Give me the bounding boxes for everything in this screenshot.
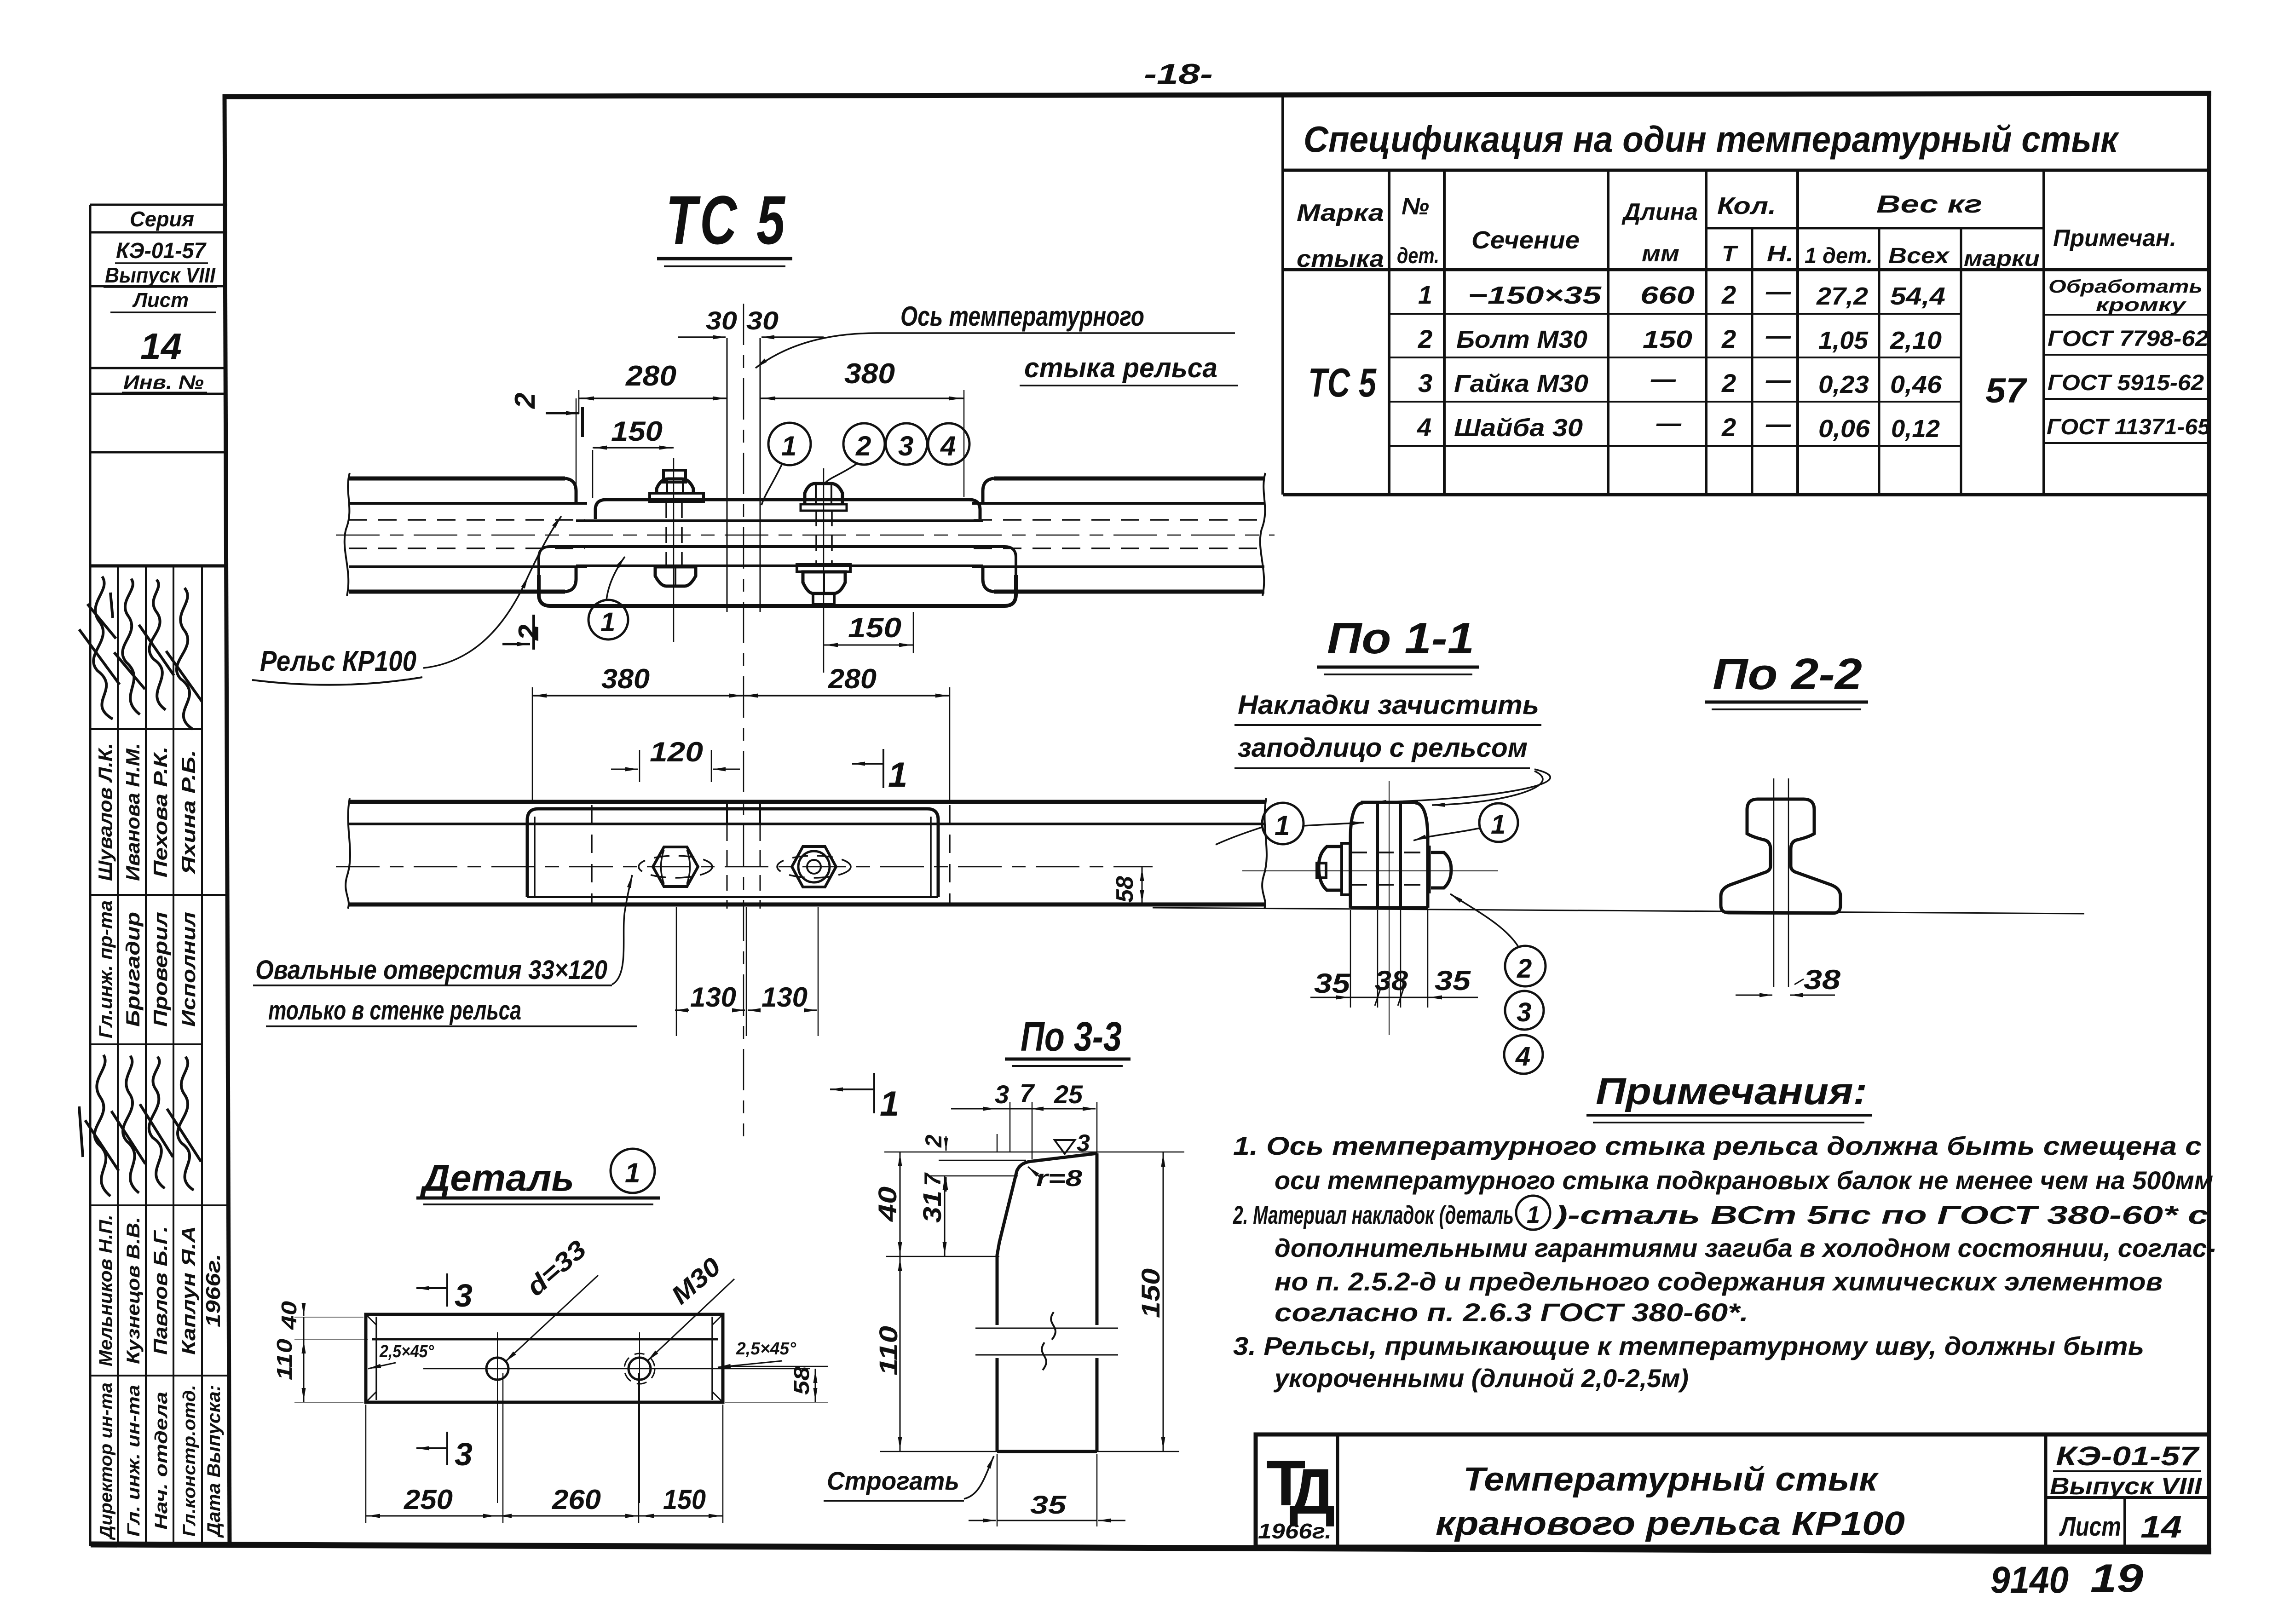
svg-text:1: 1: [1275, 810, 1290, 841]
svg-text:1: 1: [625, 1158, 640, 1188]
svg-text:260: 260: [552, 1484, 601, 1515]
svg-text:2,5×45°: 2,5×45°: [736, 1339, 796, 1359]
svg-text:Накладки зачистить: Накладки зачистить: [1238, 690, 1539, 720]
svg-text:2: 2: [509, 393, 541, 409]
svg-text:150: 150: [1643, 326, 1692, 353]
svg-text:только в стенке рельса: только в стенке рельса: [268, 996, 521, 1025]
svg-text:1: 1: [781, 431, 796, 461]
svg-text:Дата Выпуска:: Дата Выпуска:: [204, 1385, 224, 1538]
svg-text:35: 35: [1314, 968, 1351, 999]
svg-text:14: 14: [140, 326, 182, 367]
svg-text:280: 280: [625, 360, 676, 392]
svg-text:Строгать: Строгать: [827, 1466, 959, 1495]
svg-text:—: —: [1765, 322, 1791, 350]
svg-text:110: 110: [874, 1326, 903, 1376]
svg-text:—: —: [1650, 365, 1676, 393]
svg-text:0,06: 0,06: [1818, 415, 1870, 443]
svg-text:280: 280: [828, 663, 877, 694]
svg-text:120: 120: [650, 737, 703, 767]
svg-text:Марка: Марка: [1297, 200, 1384, 226]
svg-text:1: 1: [880, 1084, 899, 1123]
svg-text:укороченными (длиной 2,0-2,5: укороченными (длиной 2,0-2,5м): [1273, 1364, 1689, 1393]
svg-text:Иванова Н.М.: Иванова Н.М.: [122, 743, 144, 881]
svg-text:Рельс КР100: Рельс КР100: [260, 645, 416, 677]
svg-text:Гл.констр.отд.: Гл.констр.отд.: [180, 1385, 199, 1537]
svg-text:—: —: [1765, 278, 1791, 305]
svg-text:Павлов Б.Г.: Павлов Б.Г.: [150, 1226, 171, 1355]
svg-text:110: 110: [272, 1338, 296, 1380]
svg-text:ТС 5: ТС 5: [666, 181, 788, 259]
svg-text:3: 3: [898, 431, 913, 461]
svg-text:№: №: [1402, 193, 1429, 220]
svg-text:3. Рельсы, примыкающие к те: 3. Рельсы, примыкающие к температурному …: [1233, 1331, 2144, 1360]
svg-text:ГОСТ 5915-62: ГОСТ 5915-62: [2048, 371, 2204, 395]
svg-text:1: 1: [600, 607, 615, 637]
svg-text:30: 30: [746, 306, 779, 335]
svg-text:57: 57: [1985, 371, 2028, 410]
svg-text:2: 2: [1721, 369, 1736, 397]
svg-text:-18-: -18-: [1144, 58, 1213, 90]
svg-text:Инв. №: Инв. №: [123, 371, 204, 393]
svg-text:58: 58: [790, 1366, 813, 1395]
svg-text:Исполнил: Исполнил: [178, 912, 199, 1027]
svg-text:38: 38: [1375, 965, 1408, 996]
svg-text:2,10: 2,10: [1890, 327, 1942, 354]
svg-text:2: 2: [855, 431, 871, 461]
svg-text:35: 35: [1030, 1490, 1067, 1519]
svg-text:ТС 5: ТС 5: [1308, 360, 1377, 405]
svg-text:согласно п. 2.6.3 ГОСТ: согласно п. 2.6.3 ГОСТ 380-60*.: [1275, 1298, 1748, 1327]
svg-text:380: 380: [844, 358, 895, 390]
svg-text:Гл. инж. ин-та: Гл. инж. ин-та: [124, 1385, 144, 1537]
svg-text:14: 14: [2140, 1509, 2182, 1544]
svg-text:Гл.инж. пр-та: Гл.инж. пр-та: [96, 900, 116, 1038]
svg-text:Вес кг: Вес кг: [1876, 190, 1982, 218]
svg-text:Температурный стык: Температурный стык: [1463, 1461, 1879, 1498]
svg-text:9140: 9140: [1990, 1559, 2069, 1601]
svg-text:—: —: [1656, 409, 1682, 437]
svg-text:2: 2: [1721, 280, 1736, 309]
svg-text:Выпуск VIII: Выпуск VIII: [105, 263, 216, 287]
svg-text:но п. 2.5.2-д и предельного: но п. 2.5.2-д и предельного содержания х…: [1275, 1267, 2163, 1296]
svg-text:Болт М30: Болт М30: [1456, 326, 1587, 353]
svg-text:Серия: Серия: [130, 207, 194, 231]
svg-text:ГОСТ 7798-62: ГОСТ 7798-62: [2048, 327, 2209, 351]
svg-text:4: 4: [940, 431, 956, 461]
svg-text:Шайба 30: Шайба 30: [1454, 414, 1583, 442]
svg-text:31: 31: [917, 1191, 946, 1223]
svg-text:марки: марки: [1964, 247, 2040, 271]
svg-text:дет.: дет.: [1397, 244, 1439, 268]
svg-text:По 3-3: По 3-3: [1021, 1014, 1122, 1060]
svg-text:130: 130: [761, 982, 808, 1013]
svg-text:27,2: 27,2: [1816, 282, 1868, 310]
svg-text:250: 250: [404, 1484, 453, 1515]
svg-text:Шувалов Л.К.: Шувалов Л.К.: [94, 743, 116, 881]
svg-text:стыка: стыка: [1297, 246, 1384, 272]
svg-text:150: 150: [848, 612, 901, 643]
svg-text:130: 130: [690, 982, 736, 1013]
svg-text:1: 1: [888, 755, 907, 795]
svg-text:Бригадир: Бригадир: [122, 912, 144, 1027]
svg-text:мм: мм: [1642, 241, 1679, 266]
svg-text:19: 19: [2090, 1556, 2143, 1601]
svg-text:3: 3: [455, 1436, 473, 1472]
svg-text:3: 3: [1517, 997, 1531, 1027]
svg-text:3: 3: [995, 1080, 1009, 1109]
svg-text:0,12: 0,12: [1891, 415, 1940, 443]
svg-text:Лист: Лист: [132, 289, 189, 311]
svg-text:кранового рельса КР100: кранового рельса КР100: [1436, 1505, 1905, 1542]
svg-text:7: 7: [920, 1172, 946, 1186]
svg-text:Кол.: Кол.: [1717, 193, 1776, 219]
svg-text:Деталь: Деталь: [420, 1157, 574, 1199]
svg-text:заподлицо с рельсом: заподлицо с рельсом: [1238, 733, 1528, 763]
svg-text:4: 4: [1515, 1042, 1530, 1071]
svg-text:КЭ-01-57: КЭ-01-57: [116, 239, 207, 263]
svg-text:Т: Т: [1722, 242, 1738, 266]
svg-text:r=8: r=8: [1036, 1165, 1082, 1191]
svg-text:380: 380: [601, 663, 650, 694]
svg-text:40: 40: [277, 1301, 301, 1330]
svg-text:стыка рельса: стыка рельса: [1024, 352, 1217, 383]
svg-text:Мельников Н.П.: Мельников Н.П.: [96, 1215, 116, 1366]
svg-text:)-сталь ВСт 5пс по ГОСТ 380-60: )-сталь ВСт 5пс по ГОСТ 380-60* с: [1552, 1200, 2209, 1229]
svg-text:1: 1: [1418, 280, 1432, 309]
svg-text:По 1-1: По 1-1: [1327, 614, 1474, 663]
svg-text:1: 1: [1527, 1202, 1540, 1228]
svg-text:оси температурного стыка подк: оси температурного стыка подкрановых бал…: [1275, 1166, 2213, 1195]
svg-text:1,05: 1,05: [1818, 327, 1869, 354]
svg-text:2,5×45°: 2,5×45°: [379, 1342, 434, 1361]
svg-text:3: 3: [455, 1278, 473, 1313]
svg-text:35: 35: [1435, 965, 1471, 996]
svg-text:−150×35: −150×35: [1468, 282, 1602, 309]
svg-text:40: 40: [873, 1186, 902, 1222]
svg-text:Обработать: Обработать: [2048, 276, 2203, 297]
svg-text:30: 30: [706, 306, 737, 335]
svg-text:Всех: Всех: [1888, 244, 1950, 268]
svg-text:—: —: [1765, 366, 1791, 394]
svg-text:Н.: Н.: [1767, 242, 1794, 266]
svg-text:150: 150: [1136, 1268, 1165, 1318]
svg-text:КЭ-01-57: КЭ-01-57: [2056, 1441, 2200, 1471]
svg-text:1 дет.: 1 дет.: [1805, 244, 1873, 268]
svg-text:Д: Д: [1289, 1455, 1335, 1527]
svg-text:2: 2: [1517, 954, 1532, 984]
svg-text:2: 2: [1418, 324, 1432, 353]
svg-text:2: 2: [513, 625, 545, 641]
svg-text:Лист: Лист: [2059, 1512, 2121, 1542]
svg-text:0,23: 0,23: [1818, 371, 1869, 398]
svg-text:660: 660: [1640, 282, 1695, 309]
svg-text:1: 1: [1491, 810, 1506, 840]
svg-text:1966г.: 1966г.: [202, 1254, 225, 1327]
svg-text:Овальные отверстия 33×120: Овальные отверстия 33×120: [255, 955, 607, 985]
svg-text:Примечания:: Примечания:: [1596, 1071, 1867, 1112]
svg-text:7: 7: [1020, 1078, 1035, 1107]
svg-text:Пехова Р.К.: Пехова Р.К.: [150, 747, 171, 878]
svg-text:Директор ин-та: Директор ин-та: [97, 1382, 116, 1540]
svg-text:54,4: 54,4: [1890, 282, 1945, 310]
svg-text:ГОСТ 11371-65: ГОСТ 11371-65: [2047, 415, 2211, 439]
svg-text:Кузнецов В.В.: Кузнецов В.В.: [123, 1217, 144, 1364]
svg-text:2: 2: [921, 1134, 946, 1148]
svg-text:Примечан.: Примечан.: [2053, 225, 2176, 252]
svg-text:2: 2: [1721, 413, 1736, 442]
svg-text:Гайка М30: Гайка М30: [1454, 370, 1588, 397]
svg-text:38: 38: [1804, 964, 1841, 995]
svg-text:Проверил: Проверил: [150, 912, 171, 1027]
svg-text:Спецификация на один температу: Спецификация на один температурный стык: [1304, 119, 2119, 160]
svg-text:—: —: [1765, 410, 1791, 438]
svg-text:Яхина Р.Б.: Яхина Р.Б.: [178, 750, 199, 875]
svg-text:Нач. отдела: Нач. отдела: [152, 1392, 171, 1530]
svg-text:Сечение: Сечение: [1471, 226, 1580, 254]
svg-text:1966г.: 1966г.: [1258, 1519, 1332, 1543]
svg-text:0,46: 0,46: [1890, 371, 1942, 398]
svg-text:кромку: кромку: [2096, 295, 2186, 315]
svg-text:2. Материал накладок (деталь: 2. Материал накладок (деталь: [1233, 1200, 1514, 1229]
svg-text:Длина: Длина: [1621, 199, 1698, 225]
svg-text:150: 150: [663, 1484, 706, 1515]
svg-text:Ось температурного: Ось температурного: [900, 301, 1144, 332]
svg-text:4: 4: [1417, 413, 1431, 442]
svg-text:Каплун Я.А: Каплун Я.А: [178, 1226, 199, 1355]
svg-text:3: 3: [1077, 1130, 1090, 1157]
svg-text:150: 150: [611, 416, 663, 447]
svg-text:25: 25: [1054, 1080, 1083, 1109]
svg-text:58: 58: [1112, 876, 1138, 903]
svg-text:Выпуск VIII: Выпуск VIII: [2050, 1473, 2203, 1500]
svg-text:3: 3: [1418, 369, 1432, 397]
svg-text:дополнительными гарантиями з: дополнительными гарантиями загиба в холо…: [1275, 1233, 2215, 1262]
svg-text:1. Ось температурного стыка р: 1. Ось температурного стыка рельса должн…: [1233, 1131, 2202, 1160]
svg-text:По 2-2: По 2-2: [1713, 650, 1862, 699]
svg-text:2: 2: [1721, 324, 1736, 353]
